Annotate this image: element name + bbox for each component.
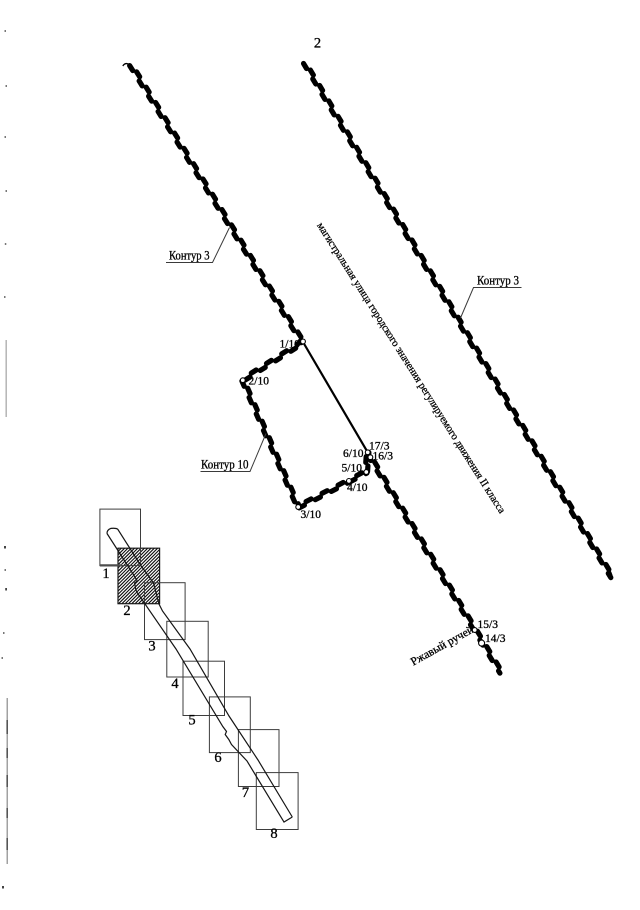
svg-text:6/10: 6/10 [343, 448, 364, 460]
svg-text:Контур 3: Контур 3 [477, 274, 519, 288]
svg-text:16/3: 16/3 [373, 451, 394, 463]
svg-text:2: 2 [123, 603, 130, 619]
svg-text:4/10: 4/10 [347, 482, 368, 494]
svg-text:7: 7 [242, 785, 249, 801]
svg-text:5/10: 5/10 [342, 463, 363, 475]
svg-text:15/3: 15/3 [478, 619, 499, 631]
svg-text:Контур 3: Контур 3 [169, 249, 210, 263]
svg-text:Контур 10: Контур 10 [201, 458, 249, 472]
svg-text:5: 5 [188, 713, 195, 729]
svg-text:2: 2 [314, 36, 321, 52]
svg-text:2/10: 2/10 [249, 376, 270, 388]
svg-text:3/10: 3/10 [301, 509, 322, 521]
svg-text:1: 1 [102, 566, 109, 582]
svg-text:6: 6 [214, 750, 221, 766]
svg-text:8: 8 [270, 826, 277, 842]
svg-text:1/10: 1/10 [280, 339, 301, 351]
svg-text:4: 4 [171, 676, 179, 692]
svg-text:14/3: 14/3 [485, 633, 506, 645]
svg-text:3: 3 [148, 639, 155, 655]
